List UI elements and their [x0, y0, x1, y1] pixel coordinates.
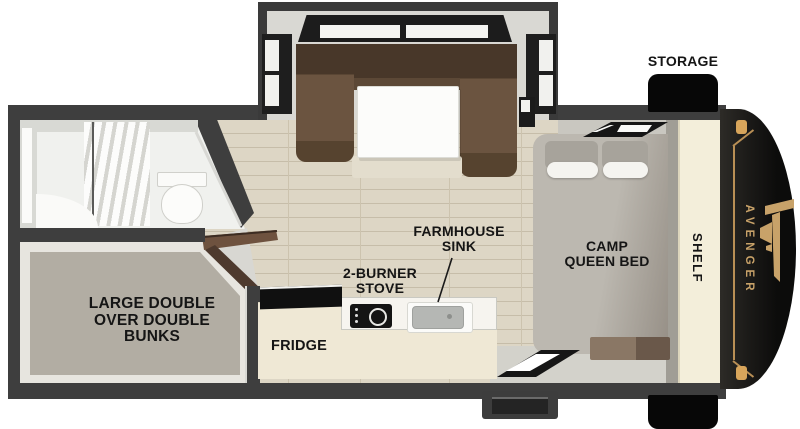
label-line: FARMHOUSE [413, 224, 504, 239]
stove-label: 2-BURNER STOVE [343, 266, 417, 296]
slideout-left-window [262, 34, 292, 114]
marker-light-icon [736, 120, 747, 134]
brand-label: AVENGER [743, 204, 755, 295]
burner-icon [369, 308, 387, 326]
bunkroom-wall [8, 228, 205, 242]
label-line: LARGE DOUBLE [89, 296, 215, 313]
toilet [161, 184, 203, 224]
label-line: 2-BURNER [343, 266, 417, 281]
exterior-wall-bottom [8, 383, 726, 399]
exterior-storage-box [648, 74, 718, 112]
fridge [260, 285, 342, 310]
cap-pinstripe [733, 146, 735, 360]
bunks-label: LARGE DOUBLE OVER DOUBLE BUNKS [89, 296, 215, 346]
slideout-wall-top [258, 2, 558, 11]
label-line: BUNKS [89, 329, 215, 346]
entry-step-tread [492, 397, 548, 414]
exterior-wall-left [8, 105, 20, 399]
bed-foot-bench [636, 337, 670, 360]
exterior-storage-box-front [648, 395, 718, 429]
dinette-table [357, 86, 459, 158]
dinette-right-bench [460, 44, 517, 177]
bedside-window [519, 97, 535, 127]
label-line: SINK [413, 239, 504, 254]
window-pane [521, 100, 530, 112]
shelf-label: SHELF [690, 233, 704, 283]
slideout-rear-window-pane [320, 25, 400, 38]
bed-foot-bench [590, 337, 636, 360]
shower-curtain-rod [92, 122, 94, 226]
two-burner-stove [350, 304, 392, 328]
fridge-label: FRIDGE [271, 339, 327, 355]
label-line: QUEEN BED [564, 254, 649, 269]
dinette-left-bench [296, 44, 354, 162]
bathroom-window [22, 128, 32, 223]
dinette-rug [352, 156, 462, 178]
stove-knobs-icon [355, 308, 358, 311]
sink-basin [412, 306, 464, 329]
window-pane [265, 40, 279, 71]
window-pane [265, 75, 279, 106]
exterior-wall-top-left [8, 105, 266, 120]
window-pane [539, 75, 553, 106]
slideout-rear-window-pane [406, 25, 488, 38]
label-line: OVER DOUBLE [89, 313, 215, 330]
rv-floorplan-canvas: STORAGE FARMHOUSE SINK 2-BURNER STOVE FR… [0, 0, 800, 429]
label-line: CAMP [564, 239, 649, 254]
window-pane [539, 40, 553, 71]
camp-queen-bed-label: CAMP QUEEN BED [564, 239, 649, 269]
storage-label: STORAGE [648, 54, 718, 69]
pillow [547, 162, 598, 178]
sink-drain-icon [447, 314, 452, 319]
pillow [603, 162, 648, 178]
farmhouse-sink-label: FARMHOUSE SINK [413, 224, 504, 254]
marker-light-icon [736, 366, 747, 380]
front-cap [720, 109, 796, 389]
label-line: STOVE [343, 281, 417, 296]
